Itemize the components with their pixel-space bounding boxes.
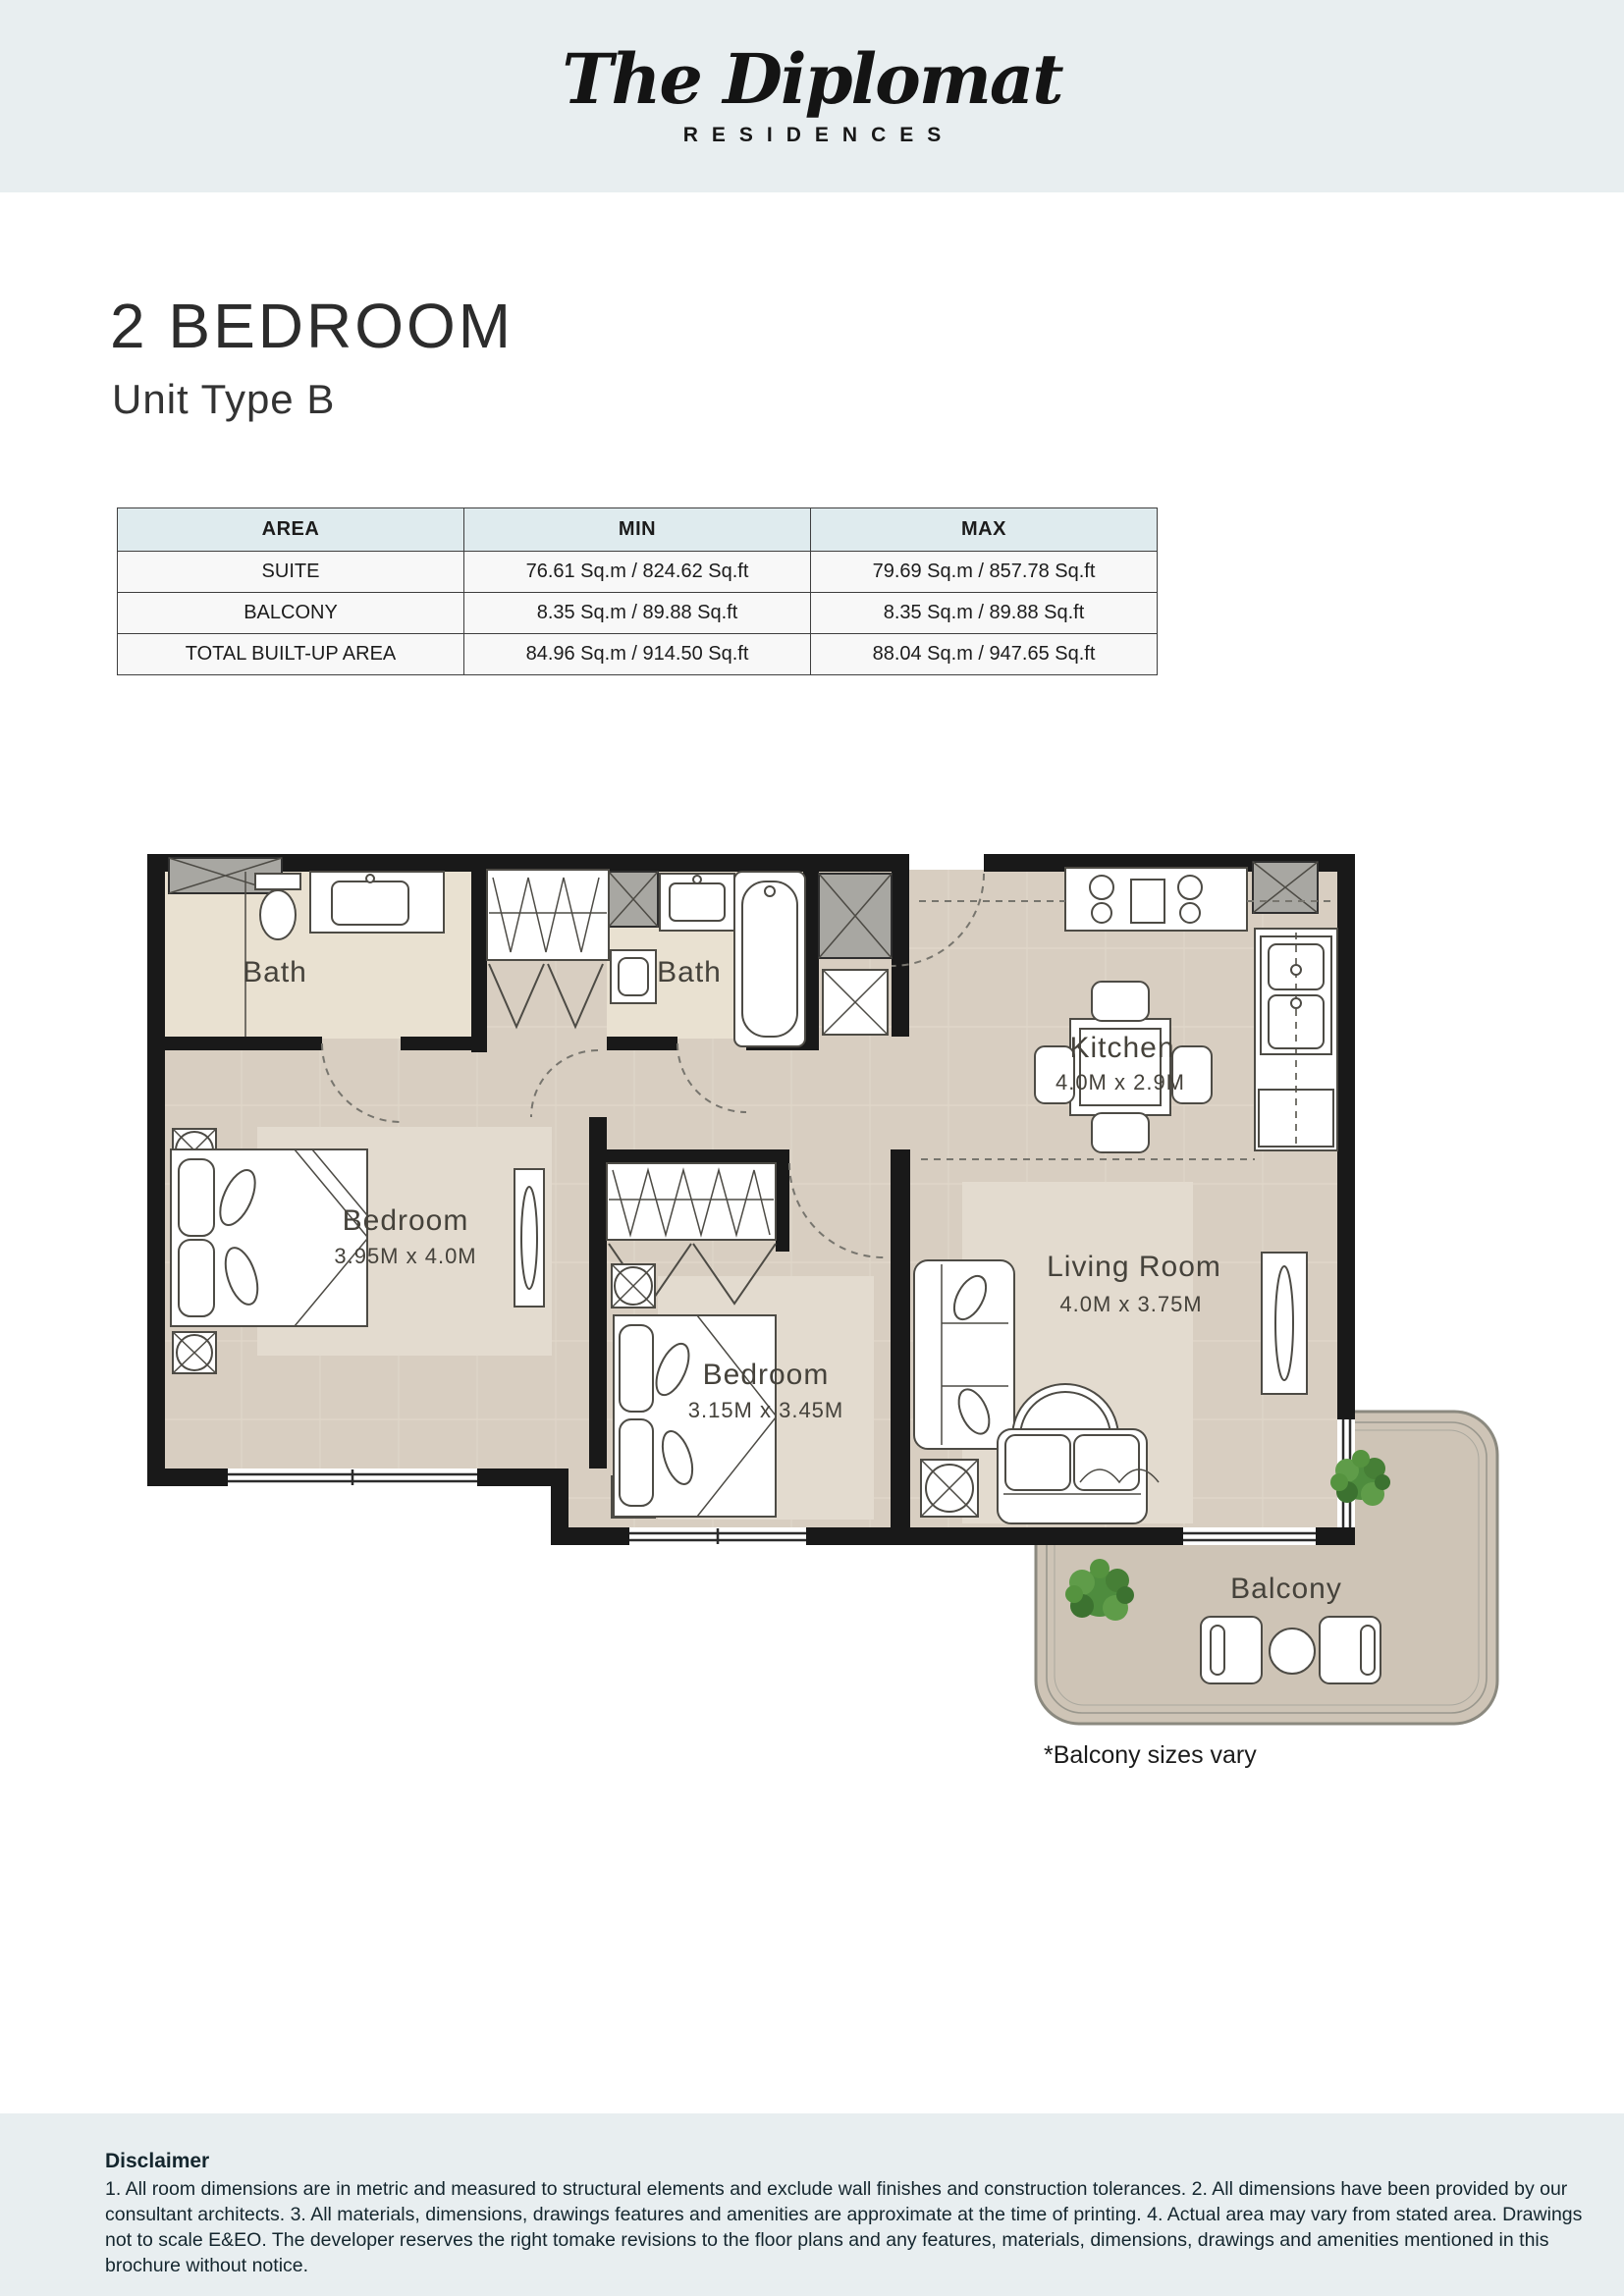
brand-logo: The Diplomat xyxy=(562,45,1061,114)
page-subtitle: Unit Type B xyxy=(112,376,335,423)
col-header-min: MIN xyxy=(464,508,811,552)
brand-logo-subtitle: RESIDENCES xyxy=(670,124,955,147)
area-table: AREA MIN MAX SUITE 76.61 Sq.m / 824.62 S… xyxy=(117,507,1158,675)
bedroom1-label: Bedroom xyxy=(343,1204,469,1237)
page-title: 2 BEDROOM xyxy=(110,290,514,362)
disclaimer: Disclaimer 1. All room dimensions are in… xyxy=(105,2150,1583,2279)
table-row: BALCONY 8.35 Sq.m / 89.88 Sq.ft 8.35 Sq.… xyxy=(118,593,1158,634)
cell-min: 76.61 Sq.m / 824.62 Sq.ft xyxy=(464,552,811,593)
bath1-label: Bath xyxy=(243,956,307,988)
living-room-label: Living Room xyxy=(1047,1251,1221,1283)
cell-max: 88.04 Sq.m / 947.65 Sq.ft xyxy=(811,634,1158,675)
cell-area: TOTAL BUILT-UP AREA xyxy=(118,634,464,675)
bath2-label: Bath xyxy=(657,956,722,988)
col-header-max: MAX xyxy=(811,508,1158,552)
kitchen-dims: 4.0M x 2.9M xyxy=(1056,1070,1185,1095)
balcony-note: *Balcony sizes vary xyxy=(1044,1741,1257,1770)
floor-plan: Bath Bath xyxy=(147,854,1512,1737)
cell-max: 79.69 Sq.m / 857.78 Sq.ft xyxy=(811,552,1158,593)
nightstand-fan xyxy=(173,1332,216,1373)
kitchen-label: Kitchen xyxy=(1069,1032,1174,1064)
table-header-row: AREA MIN MAX xyxy=(118,508,1158,552)
disclaimer-title: Disclaimer xyxy=(105,2150,1583,2173)
table-row: TOTAL BUILT-UP AREA 84.96 Sq.m / 914.50 … xyxy=(118,634,1158,675)
cell-min: 84.96 Sq.m / 914.50 Sq.ft xyxy=(464,634,811,675)
loveseat xyxy=(998,1429,1159,1523)
header-band: The Diplomat RESIDENCES xyxy=(0,0,1624,192)
bedroom2-label: Bedroom xyxy=(703,1359,830,1391)
col-header-area: AREA xyxy=(118,508,464,552)
cell-area: SUITE xyxy=(118,552,464,593)
sofa xyxy=(914,1260,1014,1449)
floor-plan-drawing: Bath Bath xyxy=(147,854,1512,1737)
nightstand-fan xyxy=(612,1264,655,1308)
brochure-page: The Diplomat RESIDENCES 2 BEDROOM Unit T… xyxy=(0,0,1624,2296)
living-room-dims: 4.0M x 3.75M xyxy=(1059,1292,1202,1316)
disclaimer-body: 1. All room dimensions are in metric and… xyxy=(105,2176,1583,2279)
bedroom2-dims: 3.15M x 3.45M xyxy=(688,1398,844,1422)
cell-max: 8.35 Sq.m / 89.88 Sq.ft xyxy=(811,593,1158,634)
tv-console xyxy=(1262,1253,1307,1394)
bedroom1-dims: 3.95M x 4.0M xyxy=(334,1244,476,1268)
floor-fan xyxy=(921,1460,978,1517)
laundry-box xyxy=(823,970,888,1035)
dresser xyxy=(514,1169,544,1307)
cell-area: BALCONY xyxy=(118,593,464,634)
table-row: SUITE 76.61 Sq.m / 824.62 Sq.ft 79.69 Sq… xyxy=(118,552,1158,593)
balcony-label: Balcony xyxy=(1230,1573,1342,1605)
cell-min: 8.35 Sq.m / 89.88 Sq.ft xyxy=(464,593,811,634)
